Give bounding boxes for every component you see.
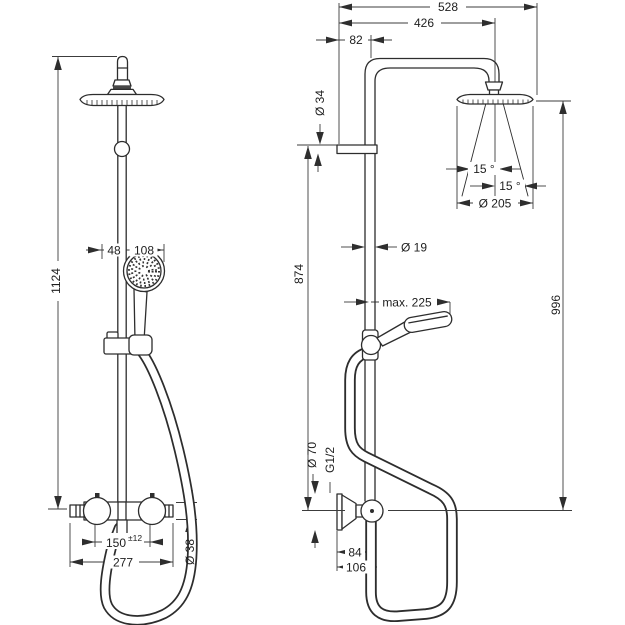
dim-valve bbox=[70, 484, 197, 567]
riser-and-arm-side bbox=[365, 59, 503, 502]
label-pipe-diameter: Ø 19 bbox=[401, 241, 427, 255]
label-spray-angle-outer: 15 ° bbox=[499, 179, 521, 193]
hose-outlet-stub bbox=[117, 520, 127, 534]
overhead-shower-side bbox=[457, 95, 533, 105]
label-head-drop-height: 996 bbox=[549, 295, 563, 315]
label-wall-offset: 82 bbox=[349, 33, 363, 47]
label-connection-thread: G1/2 bbox=[323, 447, 337, 473]
valve-handle-left bbox=[84, 498, 111, 525]
hand-shower-front bbox=[124, 251, 165, 356]
label-reach-arm: 426 bbox=[414, 16, 434, 30]
wall-bracket-arm bbox=[337, 145, 377, 154]
label-spray-angle-inner: 15 ° bbox=[473, 162, 495, 176]
label-head-diameter: Ø 205 bbox=[479, 197, 512, 211]
hand-shower-handle bbox=[134, 289, 147, 341]
label-hose-offset-far: 106 bbox=[346, 561, 366, 575]
label-flange-diameter: Ø 70 bbox=[305, 442, 319, 468]
dim-wall-connection bbox=[311, 474, 330, 548]
label-hand-width: 108 bbox=[134, 244, 154, 258]
label-overall-height: 1124 bbox=[49, 268, 63, 294]
dim-arm-diameter bbox=[297, 124, 340, 172]
label-valve-diameter: Ø 38 bbox=[183, 539, 197, 565]
riser-ball-joint bbox=[115, 142, 130, 157]
holder-cup bbox=[129, 335, 152, 355]
overhead-arm-front bbox=[108, 57, 137, 95]
dim-pipe-diameter bbox=[341, 244, 397, 251]
side-view bbox=[297, 3, 572, 616]
riser-pipe-front bbox=[118, 104, 126, 502]
overhead-shower-front bbox=[80, 95, 164, 106]
label-hose-offset-near: 84 bbox=[348, 546, 362, 560]
dim-spray-cone bbox=[446, 103, 546, 209]
label-valve-width: 277 bbox=[113, 556, 133, 570]
label-inlet-tolerance: ±12 bbox=[128, 533, 142, 543]
label-arm-diameter: Ø 34 bbox=[313, 90, 327, 116]
shower-system-dimensional-drawing: 1124 48 108 150 ±12 277 Ø 38 528 426 82 … bbox=[0, 0, 625, 625]
head-connector-nut bbox=[486, 82, 503, 90]
label-hand-shower-reach: max. 225 bbox=[382, 296, 432, 310]
label-reach-total: 528 bbox=[438, 0, 458, 14]
label-hand-offset: 48 bbox=[107, 244, 121, 258]
valve-handle-right bbox=[139, 498, 166, 525]
technical-drawing-page: 1124 48 108 150 ±12 277 Ø 38 528 426 82 … bbox=[0, 0, 625, 625]
label-wall-bracket-height: 874 bbox=[292, 264, 306, 284]
escutcheon-flange bbox=[342, 495, 356, 529]
label-inlet-spacing: 150 bbox=[106, 536, 126, 550]
